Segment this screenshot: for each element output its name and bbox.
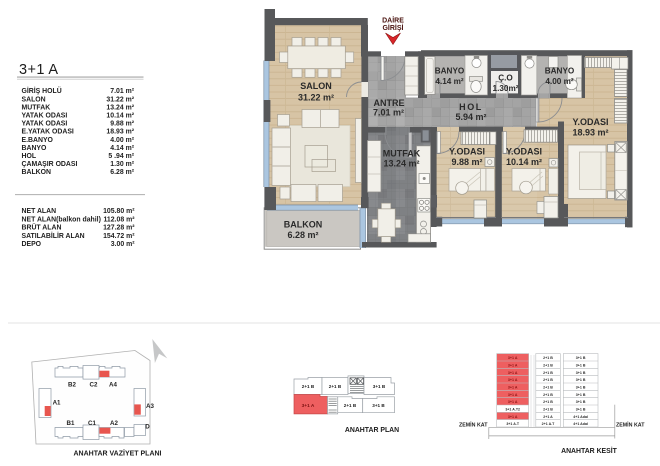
svg-text:ZEMİN KAT: ZEMİN KAT [616, 421, 645, 428]
svg-text:2+1 B: 2+1 B [344, 403, 357, 408]
svg-text:7.01 m²: 7.01 m² [110, 88, 134, 95]
svg-text:4.14 m²: 4.14 m² [435, 77, 463, 86]
svg-text:BANYO: BANYO [435, 67, 465, 76]
svg-text:ANAHTAR VAZİYET PLANI: ANAHTAR VAZİYET PLANI [73, 449, 161, 457]
svg-text:4.14 m²: 4.14 m² [110, 145, 134, 152]
svg-text:3+1 A: 3+1 A [508, 415, 518, 419]
svg-text:13.24 m²: 13.24 m² [106, 104, 134, 111]
svg-text:3+1 B: 3+1 B [576, 386, 586, 390]
svg-text:3+1 B: 3+1 B [576, 400, 586, 404]
svg-text:C2: C2 [90, 381, 98, 388]
svg-text:1.30 m²: 1.30 m² [110, 161, 134, 168]
svg-text:NET ALAN: NET ALAN [22, 208, 57, 215]
svg-text:E.BANYO: E.BANYO [22, 137, 54, 144]
svg-text:5 .94 m²: 5 .94 m² [108, 153, 134, 160]
svg-text:MUTFAK: MUTFAK [22, 104, 51, 111]
svg-text:HOL: HOL [459, 102, 483, 112]
svg-text:4.00 m²: 4.00 m² [545, 77, 573, 86]
svg-text:6.28 m²: 6.28 m² [110, 169, 134, 176]
svg-text:3.00 m²: 3.00 m² [111, 241, 135, 248]
svg-text:YATAK ODASI: YATAK ODASI [22, 121, 68, 128]
svg-text:2+1 B: 2+1 B [543, 378, 553, 382]
svg-text:2+1 B: 2+1 B [543, 393, 553, 397]
svg-text:SATILABİLİR ALAN: SATILABİLİR ALAN [22, 231, 85, 240]
svg-text:Ç.O: Ç.O [498, 74, 513, 83]
svg-text:127.28 m²: 127.28 m² [103, 225, 135, 232]
svg-text:4.00 m²: 4.00 m² [110, 137, 134, 144]
svg-text:7.01 m²: 7.01 m² [373, 108, 404, 118]
svg-text:9.88 m²: 9.88 m² [110, 121, 134, 128]
svg-text:DEPO: DEPO [22, 241, 42, 248]
svg-text:1.30m²: 1.30m² [493, 84, 519, 93]
svg-text:13.24 m²: 13.24 m² [383, 159, 419, 169]
svg-text:3+1 A: 3+1 A [302, 403, 315, 409]
svg-text:NET ALAN(balkon dahil): NET ALAN(balkon dahil) [22, 216, 101, 223]
svg-text:BALKON: BALKON [284, 220, 323, 230]
svg-text:9.88 m²: 9.88 m² [451, 157, 482, 167]
svg-text:A4: A4 [109, 381, 117, 388]
svg-text:3+1 B: 3+1 B [373, 384, 386, 389]
svg-text:3+1 A: 3+1 A [508, 400, 518, 404]
svg-text:3+1 A: 3+1 A [508, 356, 518, 360]
svg-text:2+1 B: 2+1 B [543, 364, 553, 368]
svg-text:3+1 A: 3+1 A [508, 393, 518, 397]
svg-text:GİRİŞ HOLÜ: GİRİŞ HOLÜ [22, 86, 62, 95]
svg-text:3+1 A.T: 3+1 A.T [506, 422, 520, 426]
svg-text:2+1 B: 2+1 B [543, 408, 553, 412]
svg-text:105.80 m²: 105.80 m² [103, 208, 135, 215]
svg-text:10.14 m²: 10.14 m² [106, 113, 134, 120]
svg-text:3+1 B: 3+1 B [576, 356, 586, 360]
svg-text:3+1 B: 3+1 B [372, 403, 385, 408]
svg-text:3+1 B: 3+1 B [576, 364, 586, 368]
svg-text:YATAK ODASI: YATAK ODASI [22, 113, 68, 120]
svg-text:2+1 B: 2+1 B [302, 384, 315, 389]
svg-text:3+1 A: 3+1 A [508, 371, 518, 375]
svg-text:SALON: SALON [300, 81, 332, 91]
svg-text:ANTRE: ANTRE [374, 98, 405, 108]
svg-text:Y.ODASI: Y.ODASI [449, 147, 485, 157]
svg-text:B2: B2 [68, 381, 76, 388]
svg-text:3+1 A: 3+1 A [508, 364, 518, 368]
svg-text:E.YATAK ODASI: E.YATAK ODASI [22, 129, 74, 136]
svg-text:31.22 m²: 31.22 m² [298, 93, 334, 103]
svg-text:ZEMİN KAT: ZEMİN KAT [459, 421, 488, 428]
svg-text:2+1 B: 2+1 B [543, 386, 553, 390]
svg-text:DAİRE: DAİRE [382, 17, 404, 25]
svg-text:BRÜT ALAN: BRÜT ALAN [22, 223, 62, 232]
svg-text:A1: A1 [53, 399, 61, 406]
svg-text:ANAHTAR KESİT: ANAHTAR KESİT [561, 446, 618, 455]
svg-text:3+1 A: 3+1 A [508, 378, 518, 382]
svg-text:HOL: HOL [22, 153, 37, 160]
svg-text:18.93 m²: 18.93 m² [572, 128, 608, 138]
svg-text:6.28 m²: 6.28 m² [287, 230, 318, 240]
svg-text:2+1 B: 2+1 B [329, 384, 342, 389]
svg-text:4+1 Adal: 4+1 Adal [573, 415, 588, 419]
svg-text:3+1 A: 3+1 A [19, 62, 59, 78]
svg-text:2+1 A.T: 2+1 A.T [542, 422, 556, 426]
svg-text:3+1 A.T2: 3+1 A.T2 [505, 408, 520, 412]
svg-text:D: D [145, 423, 150, 430]
svg-text:10.14 m²: 10.14 m² [506, 157, 542, 167]
svg-text:MUTFAK: MUTFAK [383, 149, 421, 159]
svg-text:Y.ODASI: Y.ODASI [572, 117, 608, 127]
svg-text:3+1 A: 3+1 A [508, 386, 518, 390]
svg-text:BANYO: BANYO [545, 67, 575, 76]
svg-text:3+1 B: 3+1 B [576, 408, 586, 412]
svg-text:3+1 B: 3+1 B [576, 393, 586, 397]
svg-text:ÇAMAŞIR ODASI: ÇAMAŞIR ODASI [22, 161, 78, 168]
svg-text:2+1 A: 2+1 A [543, 415, 553, 419]
svg-text:112.08 m²: 112.08 m² [103, 216, 135, 223]
svg-text:154.72 m²: 154.72 m² [103, 233, 135, 240]
svg-text:3+1 B: 3+1 B [576, 371, 586, 375]
svg-text:BANYO: BANYO [22, 145, 48, 152]
svg-text:A3: A3 [146, 403, 154, 410]
svg-text:5.94 m²: 5.94 m² [455, 112, 486, 122]
svg-text:BALKON: BALKON [22, 169, 51, 176]
svg-text:SALON: SALON [22, 96, 46, 103]
svg-text:2+1 B: 2+1 B [543, 371, 553, 375]
svg-text:3+1 B: 3+1 B [576, 378, 586, 382]
svg-text:B1: B1 [67, 420, 75, 427]
svg-text:2+1 B: 2+1 B [543, 356, 553, 360]
svg-text:4+1 Adal: 4+1 Adal [573, 422, 588, 426]
svg-text:31.22 m²: 31.22 m² [106, 96, 134, 103]
svg-text:A2: A2 [110, 420, 118, 427]
svg-text:ANAHTAR PLAN: ANAHTAR PLAN [345, 427, 399, 434]
svg-text:2+1 B: 2+1 B [543, 400, 553, 404]
svg-text:Y.ODASI: Y.ODASI [506, 147, 542, 157]
svg-text:GİRİŞİ: GİRİŞİ [382, 24, 403, 32]
svg-text:18.93 m²: 18.93 m² [106, 129, 134, 136]
svg-text:C1: C1 [88, 420, 96, 427]
